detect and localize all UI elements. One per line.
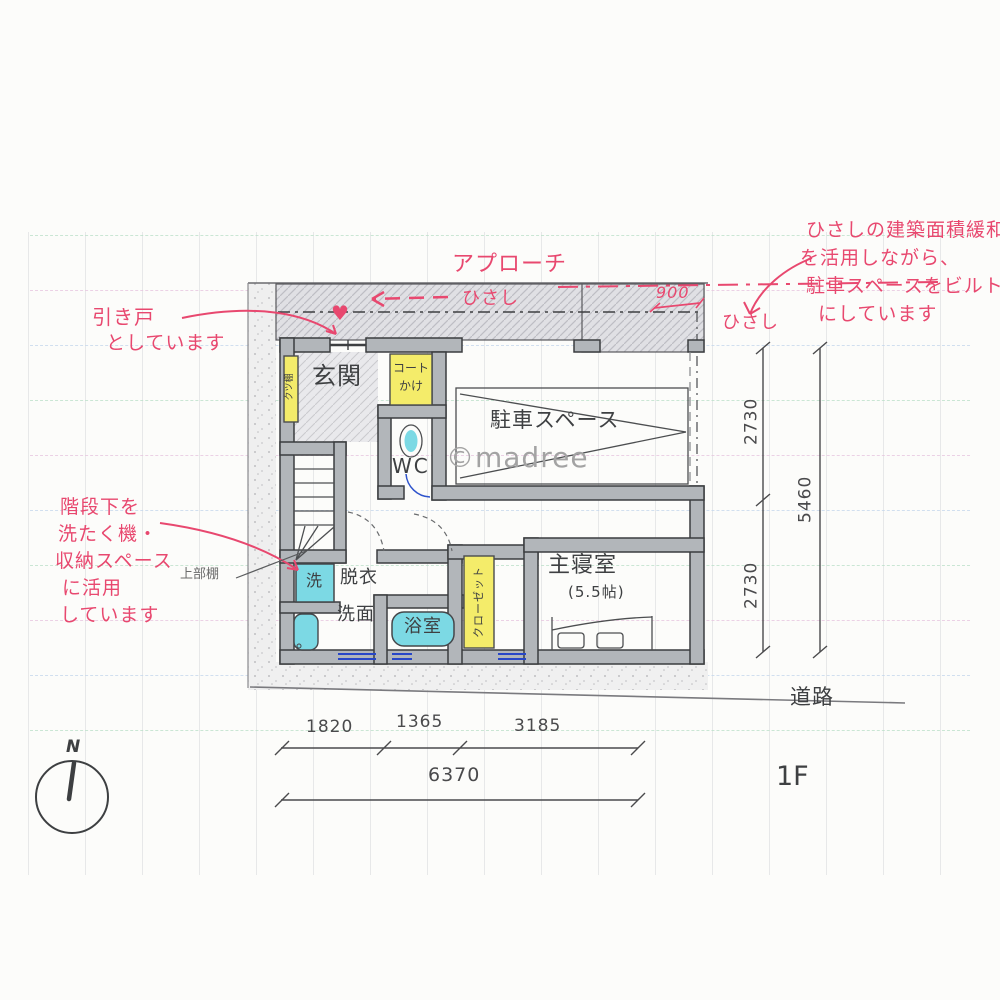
compass-north-label: N (66, 738, 80, 757)
eaves-note-line: ひさしの建築面積緩和 (806, 220, 1000, 241)
stairs-note-line: しています (60, 605, 159, 626)
room-closet-label: クローゼット (473, 557, 485, 647)
room-entrance-label: 玄関 (312, 363, 362, 389)
stairs (294, 455, 334, 560)
eaves-label-top: ひさし (462, 289, 519, 309)
dim-right-bottom: 2730 (743, 555, 762, 615)
floor-label: 1F (776, 762, 809, 792)
road-label: 道路 (790, 686, 834, 709)
washer-label: 洗 (306, 572, 322, 590)
north-compass (36, 761, 108, 833)
upper-shelf-label: 上部棚 (180, 568, 219, 582)
approach-label: アプローチ (452, 253, 567, 277)
eaves-label-right: ひさし (722, 313, 779, 333)
pillow (597, 633, 623, 648)
entrance-sliding-door (330, 340, 366, 350)
stairs-note-line: 収納スペース (55, 551, 173, 572)
dim-right-total: 5460 (797, 467, 816, 531)
dim-right-top: 2730 (743, 391, 762, 451)
floor-plan-page: アプローチ ひさし 900 ひさし ♥ ひさしの建築面積緩和 を活用しながら、 … (0, 0, 1000, 1000)
door-marker-heart-icon: ♥ (331, 302, 349, 324)
dim-bottom-1: 1820 (306, 718, 353, 737)
room-coat-rack-label2: かけ (399, 380, 423, 393)
room-coat-rack-label: コート (393, 362, 429, 375)
door-swing-arcs (348, 512, 452, 551)
stairs-note-line: に活用 (62, 578, 122, 599)
floor-plan-drawing (0, 0, 1000, 1000)
eaves-note-line: にしています (818, 304, 937, 325)
sliding-door-note-line: 引き戸 (92, 306, 155, 328)
eaves-depth-dim: 900 (656, 284, 690, 302)
dim-bottom-total: 6370 (428, 765, 480, 786)
watermark: ©madree (446, 443, 589, 474)
dim-bottom-2: 1365 (396, 713, 443, 732)
stairs-note-line: 階段下を (60, 497, 140, 518)
room-bedroom-size: (5.5帖) (568, 584, 625, 601)
eaves-note-line: を活用しながら、 (800, 248, 960, 269)
stairs-note-line: 洗たく機・ (58, 524, 158, 545)
room-bedroom-label: 主寝室 (548, 554, 617, 578)
room-washroom-label: 洗面 (337, 605, 375, 625)
bed (552, 616, 652, 650)
room-bathroom-label: 浴室 (404, 617, 442, 637)
eaves-note-line: 駐車スペースをビルトイン (806, 276, 1000, 297)
shoe-shelf-label: クツ棚 (286, 357, 296, 417)
room-toilet-label: WC (392, 455, 430, 477)
dim-bottom-3: 3185 (514, 717, 561, 736)
compass-needle (69, 763, 74, 799)
room-dressing-label: 脱衣 (340, 568, 378, 588)
room-parking-label: 駐車スペース (490, 409, 619, 432)
stairs-note-leader (160, 523, 298, 570)
sliding-door-note-line: としています (106, 333, 225, 354)
pillow (558, 633, 584, 648)
